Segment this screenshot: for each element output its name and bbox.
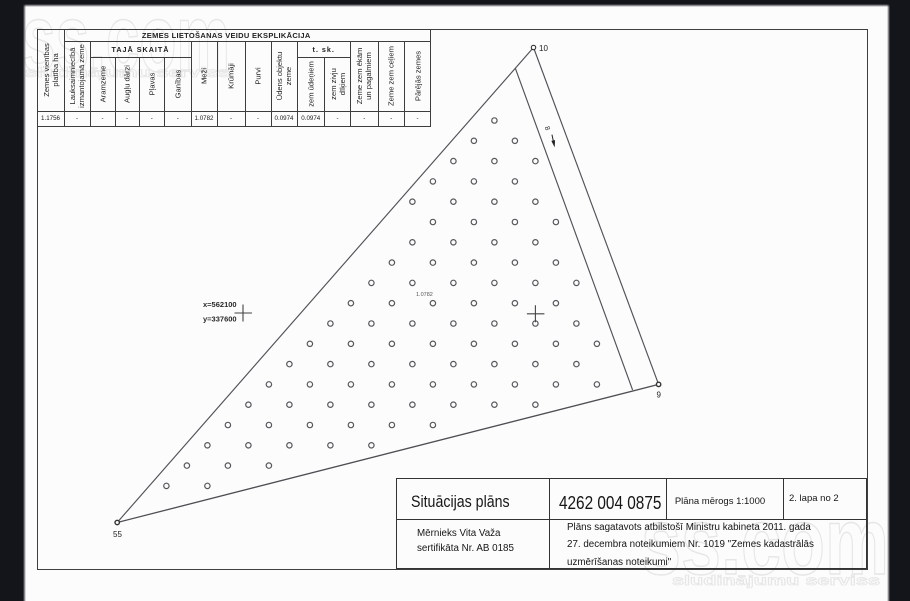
svg-text:y=337600: y=337600 — [203, 315, 237, 324]
svg-text:1.0782: 1.0782 — [416, 292, 433, 298]
svg-text:9: 9 — [657, 391, 662, 400]
svg-text:10: 10 — [539, 44, 548, 53]
svg-text:55: 55 — [113, 530, 122, 539]
svg-text:8: 8 — [543, 126, 551, 132]
svg-text:x=562100: x=562100 — [203, 300, 237, 309]
